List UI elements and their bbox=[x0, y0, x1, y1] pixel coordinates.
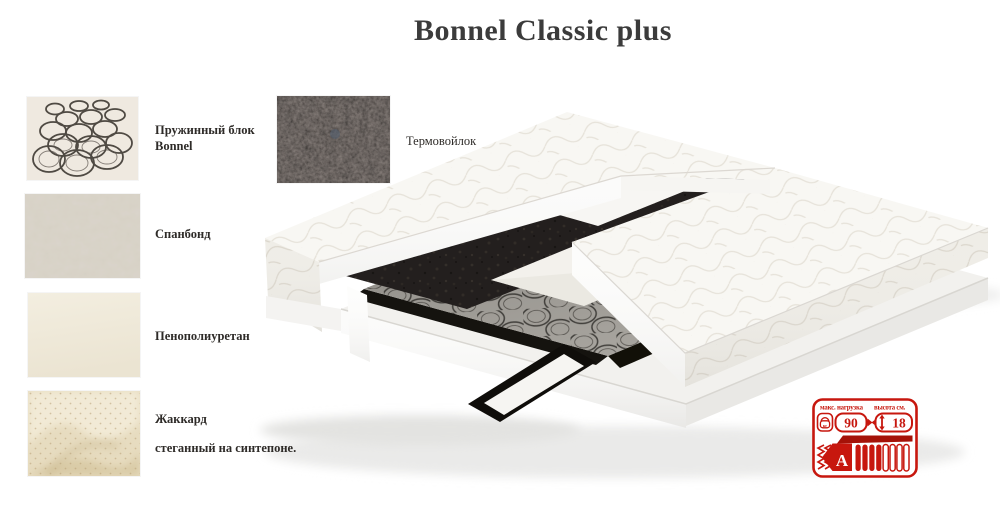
label-spring-block: Пружинный блок Bonnel bbox=[155, 122, 305, 154]
label-line: Спанбонд bbox=[155, 226, 305, 242]
label-line: Термовойлок bbox=[406, 133, 556, 149]
springs-swatch-image bbox=[27, 97, 138, 180]
max-load-value: 90 bbox=[844, 416, 858, 431]
foam-swatch-image bbox=[28, 293, 140, 377]
label-line: Пенополиуретан bbox=[155, 328, 305, 344]
kg-unit-label: кг bbox=[823, 423, 827, 428]
spec-badge: макс. нагрузка высота см. кг 90 bbox=[812, 398, 918, 478]
jacquard-swatch-image bbox=[28, 391, 140, 476]
spunbond-swatch-image bbox=[25, 194, 140, 278]
label-thermofelt: Термовойлок bbox=[406, 133, 556, 149]
height-value: 18 bbox=[892, 416, 906, 431]
label-foam: Пенополиуретан bbox=[155, 328, 305, 344]
product-infographic: Bonnel Classic plus bbox=[0, 0, 1000, 507]
label-line: Жаккард bbox=[155, 411, 320, 427]
grade-letter: A bbox=[836, 451, 849, 470]
label-spunbond: Спанбонд bbox=[155, 226, 305, 242]
label-line: Bonnel bbox=[155, 138, 305, 154]
height-label: высота см. bbox=[874, 405, 906, 412]
label-jacquard: Жаккард стеганный на синтепоне. bbox=[155, 411, 320, 456]
page-title: Bonnel Classic plus bbox=[0, 14, 1000, 48]
label-line: стеганный на синтепоне. bbox=[155, 440, 320, 456]
max-load-label: макс. нагрузка bbox=[820, 405, 864, 412]
label-line: Пружинный блок bbox=[155, 122, 305, 138]
